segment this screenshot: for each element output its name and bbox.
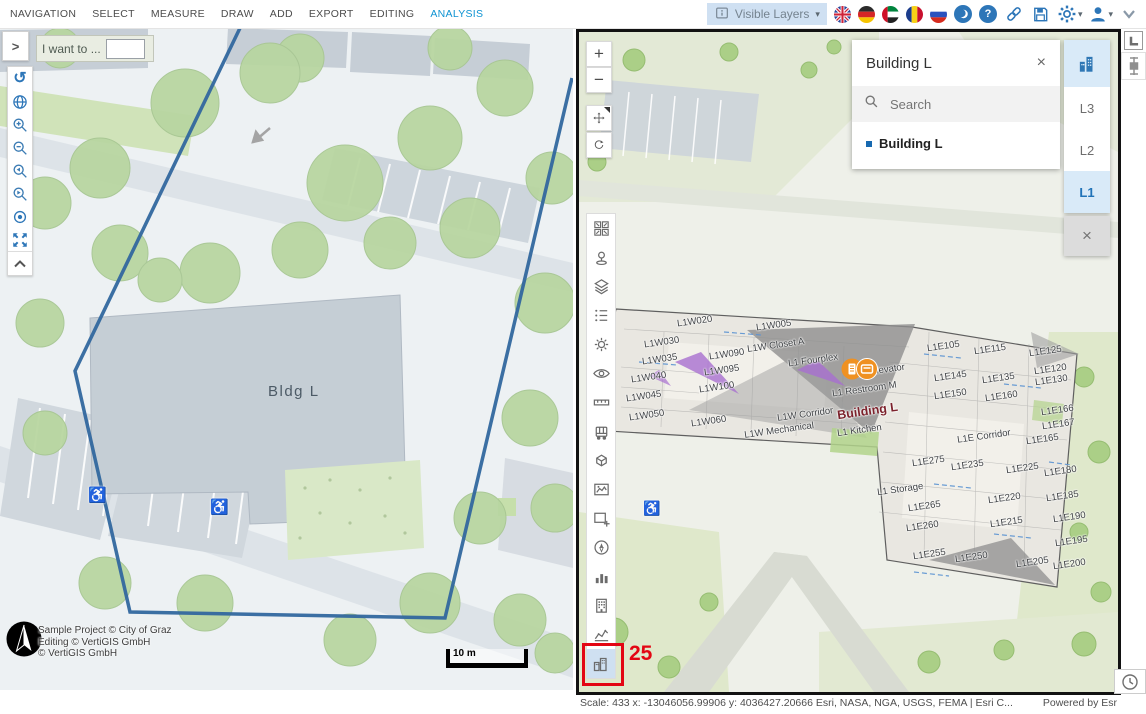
building-levels-icon[interactable] [1064, 40, 1110, 87]
menu-item-analysis[interactable]: ANALYSIS [422, 0, 491, 28]
level-filter-close-icon[interactable]: × [1064, 216, 1110, 256]
home-globe-icon[interactable] [8, 90, 32, 113]
measure-3d-icon[interactable] [587, 417, 615, 446]
flag-uk-icon[interactable] [834, 6, 851, 23]
wheelchair-icon: ♿ [88, 486, 107, 504]
level-button-l1[interactable]: L1 [1064, 171, 1110, 213]
measure-distance-icon[interactable] [587, 388, 615, 417]
app-window: NAVIGATIONSELECTMEASUREDRAWADDEXPORTEDIT… [0, 0, 1146, 714]
main-menu: NAVIGATIONSELECTMEASUREDRAWADDEXPORTEDIT… [0, 0, 491, 28]
dock-layout-icon[interactable] [1124, 31, 1143, 50]
pan-tool-button[interactable] [586, 105, 612, 131]
collapse-up-icon[interactable] [8, 251, 32, 275]
locate-icon[interactable] [8, 205, 32, 228]
building-popup: Building L × Building L [852, 40, 1060, 169]
result-label: Building L [879, 136, 943, 151]
scene-toolbar [586, 213, 616, 679]
user-icon[interactable]: ▾ [1089, 5, 1113, 23]
flag-uae-icon[interactable] [882, 6, 899, 23]
menu-item-measure[interactable]: MEASURE [143, 0, 213, 28]
compass-icon[interactable] [587, 533, 615, 562]
menu-item-add[interactable]: ADD [262, 0, 301, 28]
search-icon [864, 94, 880, 115]
left-map-toolbar: ↺ [7, 66, 33, 276]
statusbar-powered-by: Powered by Esr [1043, 697, 1117, 709]
left-map-canvas [0, 28, 573, 690]
rotate-tool-button[interactable] [586, 132, 612, 158]
popup-search [852, 86, 1060, 122]
building-explorer-icon[interactable] [587, 591, 615, 620]
i-want-to-input[interactable] [106, 39, 145, 59]
wheelchair-icon: ♿ [643, 500, 660, 517]
left-map-panel[interactable]: > I want to ... ↺ [0, 28, 573, 690]
level-button-l3[interactable]: L3 [1064, 87, 1110, 129]
menu-item-navigation[interactable]: NAVIGATION [2, 0, 84, 28]
help-icon[interactable]: ? [979, 5, 997, 23]
map-attribution: Sample Project © City of Graz Editing © … [38, 625, 172, 660]
chevron-down-icon: ▾ [815, 9, 820, 20]
flag-romania-icon[interactable] [906, 6, 923, 23]
level-filter: L3L2L1 [1064, 40, 1110, 213]
screenshot-icon[interactable] [587, 475, 615, 504]
result-bullet-icon [866, 141, 872, 147]
save-icon[interactable] [1031, 5, 1050, 24]
chevron-down-icon: ▾ [1078, 9, 1083, 20]
zoom-in-icon[interactable] [8, 113, 32, 136]
search-input[interactable] [888, 96, 1032, 113]
daylight-icon[interactable] [587, 330, 615, 359]
add-report-icon[interactable] [587, 504, 615, 533]
visible-layers-label: Visible Layers [735, 7, 809, 21]
menu-item-editing[interactable]: EDITING [362, 0, 423, 28]
feature-callout-icon[interactable] [841, 355, 879, 388]
previous-extent-icon[interactable] [8, 159, 32, 182]
link-icon[interactable] [1004, 4, 1024, 24]
legend-icon[interactable] [587, 301, 615, 330]
placemark-icon[interactable] [587, 243, 615, 272]
moon-icon[interactable] [954, 5, 972, 23]
buildings-3d-icon[interactable] [587, 649, 615, 678]
next-extent-icon[interactable] [8, 182, 32, 205]
visibility-icon[interactable] [587, 359, 615, 388]
default-tool-icon[interactable]: ↺ [8, 67, 32, 90]
settings-icon[interactable]: ▾ [1057, 4, 1083, 24]
menu-item-select[interactable]: SELECT [84, 0, 143, 28]
menubar-right-tools: Visible Layers ▾ ? [707, 3, 1146, 25]
panel-expander-button[interactable]: > [2, 31, 29, 61]
tutorial-step-number: 25 [629, 642, 652, 666]
swipe-vertical-icon[interactable] [1121, 52, 1146, 80]
scalebar: 10 m [446, 649, 528, 668]
scalebar-label: 10 m [450, 649, 524, 659]
i-want-to-widget: I want to ... [36, 35, 154, 62]
menu-item-export[interactable]: EXPORT [301, 0, 362, 28]
flag-germany-icon[interactable] [858, 6, 875, 23]
menubar: NAVIGATIONSELECTMEASUREDRAWADDEXPORTEDIT… [0, 0, 1146, 29]
i-want-to-label: I want to ... [42, 42, 101, 56]
flag-russia-icon[interactable] [930, 6, 947, 23]
full-extent-icon[interactable] [8, 228, 32, 251]
chart-icon[interactable] [587, 562, 615, 591]
level-button-l2[interactable]: L2 [1064, 129, 1110, 171]
zoom-out-icon[interactable] [8, 136, 32, 159]
elevation-profile-icon[interactable] [587, 620, 615, 649]
statusbar: Scale: 433 x: -13046056.99906 y: 4036427… [576, 695, 1121, 711]
chevron-down-icon: ▾ [1108, 9, 1113, 20]
popup-result-building-l[interactable]: Building L [866, 136, 1046, 151]
wheelchair-icon: ♿ [210, 498, 229, 516]
slice-icon[interactable] [587, 446, 615, 475]
viewpoints-icon[interactable] [587, 214, 615, 243]
scene-zoom-in-button[interactable]: + [586, 41, 612, 67]
statusbar-scale-coords: Scale: 433 x: -13046056.99906 y: 4036427… [580, 697, 1013, 709]
menu-item-draw[interactable]: DRAW [213, 0, 262, 28]
layers-icon[interactable] [587, 272, 615, 301]
map-building-label: Bldg L [268, 383, 320, 400]
visible-layers-icon [714, 5, 730, 24]
visible-layers-button[interactable]: Visible Layers ▾ [707, 3, 827, 25]
clock-icon[interactable] [1114, 669, 1146, 694]
collapse-toolbar-icon[interactable] [1120, 7, 1138, 21]
popup-title: Building L [866, 55, 932, 72]
scene-zoom-out-button[interactable]: − [586, 67, 612, 93]
close-icon[interactable]: × [1037, 54, 1046, 72]
